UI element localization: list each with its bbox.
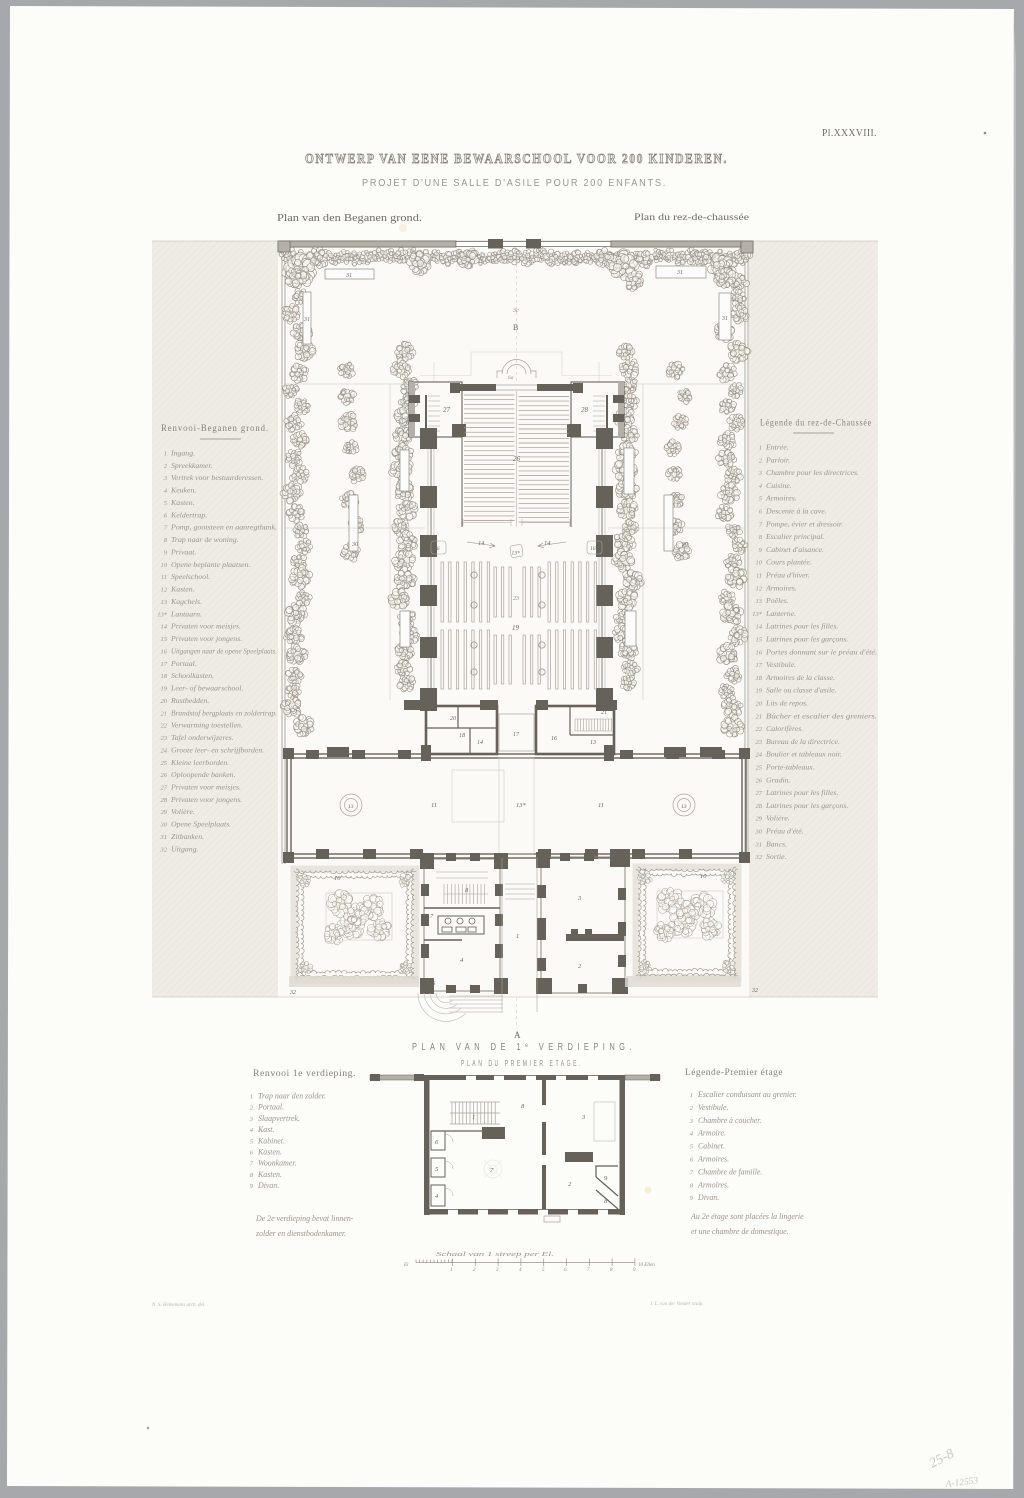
svg-text:16: 16 [551,736,557,742]
svg-text:B: B [513,323,518,332]
svg-text:3c: 3c [512,308,519,314]
svg-text:16: 16 [434,546,440,552]
svg-text:20: 20 [450,716,456,722]
svg-text:Plan du rez-de-chaussée: Plan du rez-de-chaussée [634,213,749,223]
svg-text:11: 11 [431,802,437,809]
svg-text:26: 26 [513,455,521,463]
svg-text:13*: 13* [516,802,527,809]
svg-text:27: 27 [443,406,451,414]
svg-text:13: 13 [348,804,354,810]
svg-text:18: 18 [459,733,465,739]
svg-text:30: 30 [351,542,358,548]
svg-text:28: 28 [581,406,589,414]
svg-text:PROJET D'UNE SALLE D'ASILE POU: PROJET D'UNE SALLE D'ASILE POUR 200 ENFA… [362,177,667,189]
svg-text:21: 21 [601,710,607,716]
svg-text:A: A [514,1030,521,1040]
svg-text:16: 16 [590,546,596,552]
svg-text:14: 14 [544,540,551,547]
svg-text:17: 17 [513,732,520,738]
svg-text:30: 30 [681,542,688,548]
svg-text:19: 19 [512,624,520,632]
svg-text:31: 31 [676,270,683,276]
svg-text:31: 31 [345,273,352,279]
svg-text:ONTWERP VAN EENE BEWAARSCHOOL: ONTWERP VAN EENE BEWAARSCHOOL VOOR 200 K… [305,151,728,166]
svg-text:23: 23 [513,596,519,602]
svg-text:13: 13 [681,804,687,810]
svg-text:Plan van den Beganen grond.: Plan van den Beganen grond. [277,213,422,224]
svg-text:11: 11 [598,802,604,809]
svg-text:Pl.XXXVIII.: Pl.XXXVIII. [822,128,877,139]
svg-text:31: 31 [721,316,728,322]
svg-text:13: 13 [590,740,596,746]
svg-text:31: 31 [303,317,310,323]
svg-text:6a: 6a [508,375,514,381]
svg-text:13*: 13* [512,551,521,557]
svg-text:14: 14 [477,739,483,746]
